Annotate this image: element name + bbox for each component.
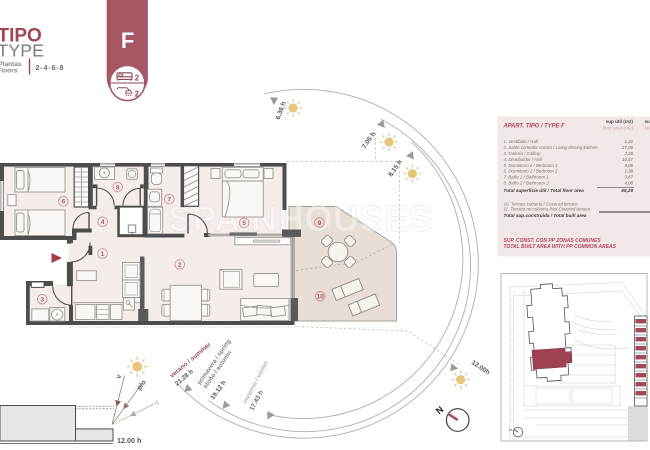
svg-text:2,26: 2,26 [623, 151, 633, 156]
svg-text:10,57: 10,57 [622, 157, 634, 162]
svg-text:10: 10 [317, 294, 325, 301]
svg-text:3: 3 [40, 297, 44, 304]
svg-text:5. Dormitorio 1 / Bedroom 1: 5. Dormitorio 1 / Bedroom 1 [504, 163, 558, 168]
svg-text:2: 2 [135, 74, 140, 83]
svg-text:1,22: 1,22 [624, 139, 633, 144]
svg-text:1: 1 [101, 251, 105, 258]
svg-text:4. Distribuidor / Hall: 4. Distribuidor / Hall [504, 157, 543, 162]
svg-text:3. Galería / Gallery: 3. Galería / Gallery [504, 151, 542, 156]
svg-text:Floors: Floors [0, 68, 18, 75]
svg-text:APART. TIPO / TYPE F: APART. TIPO / TYPE F [503, 123, 566, 130]
svg-text:27,06: 27,06 [621, 145, 634, 150]
svg-text:4,08: 4,08 [624, 181, 633, 186]
svg-text:3,67: 3,67 [624, 175, 633, 180]
svg-text:4: 4 [101, 219, 105, 226]
svg-text:1,38: 1,38 [624, 169, 633, 174]
svg-text:sup útil (m2): sup útil (m2) [606, 119, 634, 124]
svg-text:2: 2 [178, 262, 182, 269]
svg-text:10. Terraza cubierta / Covered: 10. Terraza cubierta / Covered terrace [504, 201, 579, 206]
svg-text:floor area (m2): floor area (m2) [603, 125, 634, 130]
svg-text:2: 2 [135, 90, 140, 99]
svg-text:2-4-6-8: 2-4-6-8 [36, 63, 65, 72]
svg-text:6. Dormitorio 2 / Bedroom 2: 6. Dormitorio 2 / Bedroom 2 [504, 169, 558, 174]
svg-text:sup co: sup co [645, 119, 650, 124]
svg-text:7. Baño 1 / Bathroom 1: 7. Baño 1 / Bathroom 1 [504, 175, 550, 180]
svg-text:6: 6 [61, 199, 65, 206]
svg-text:8: 8 [116, 185, 120, 192]
svg-text:12.00 h: 12.00 h [117, 436, 141, 445]
svg-text:Total sup.construida / Total b: Total sup.construida / Total built area [504, 213, 587, 218]
svg-text:F: F [121, 28, 134, 53]
svg-text:8. Baño 2 / Bathroom 2: 8. Baño 2 / Bathroom 2 [504, 181, 550, 186]
svg-text:built: built [645, 125, 650, 130]
svg-text:Total superficie útil / Total: Total superficie útil / Total floor area [504, 188, 585, 193]
svg-text:7: 7 [167, 197, 171, 204]
svg-text:TOTAL BUILT AREA WITH PP COMMO: TOTAL BUILT AREA WITH PP COMMON AREAS [504, 244, 617, 250]
svg-text:11. Terraza no cubierta /Not C: 11. Terraza no cubierta /Not Covered ter… [504, 207, 591, 212]
svg-text:9,05: 9,05 [624, 163, 633, 168]
svg-text:2. Salón comedor cocina / Livi: 2. Salón comedor cocina / Living dinning… [503, 145, 599, 150]
svg-text:9: 9 [318, 220, 322, 227]
svg-text:1. Vestíbulo / Hall: 1. Vestíbulo / Hall [504, 139, 539, 144]
svg-text:59,29: 59,29 [621, 188, 633, 193]
svg-text:TYPE: TYPE [0, 41, 44, 61]
svg-text:5: 5 [242, 220, 246, 227]
svg-text:N: N [509, 428, 512, 432]
